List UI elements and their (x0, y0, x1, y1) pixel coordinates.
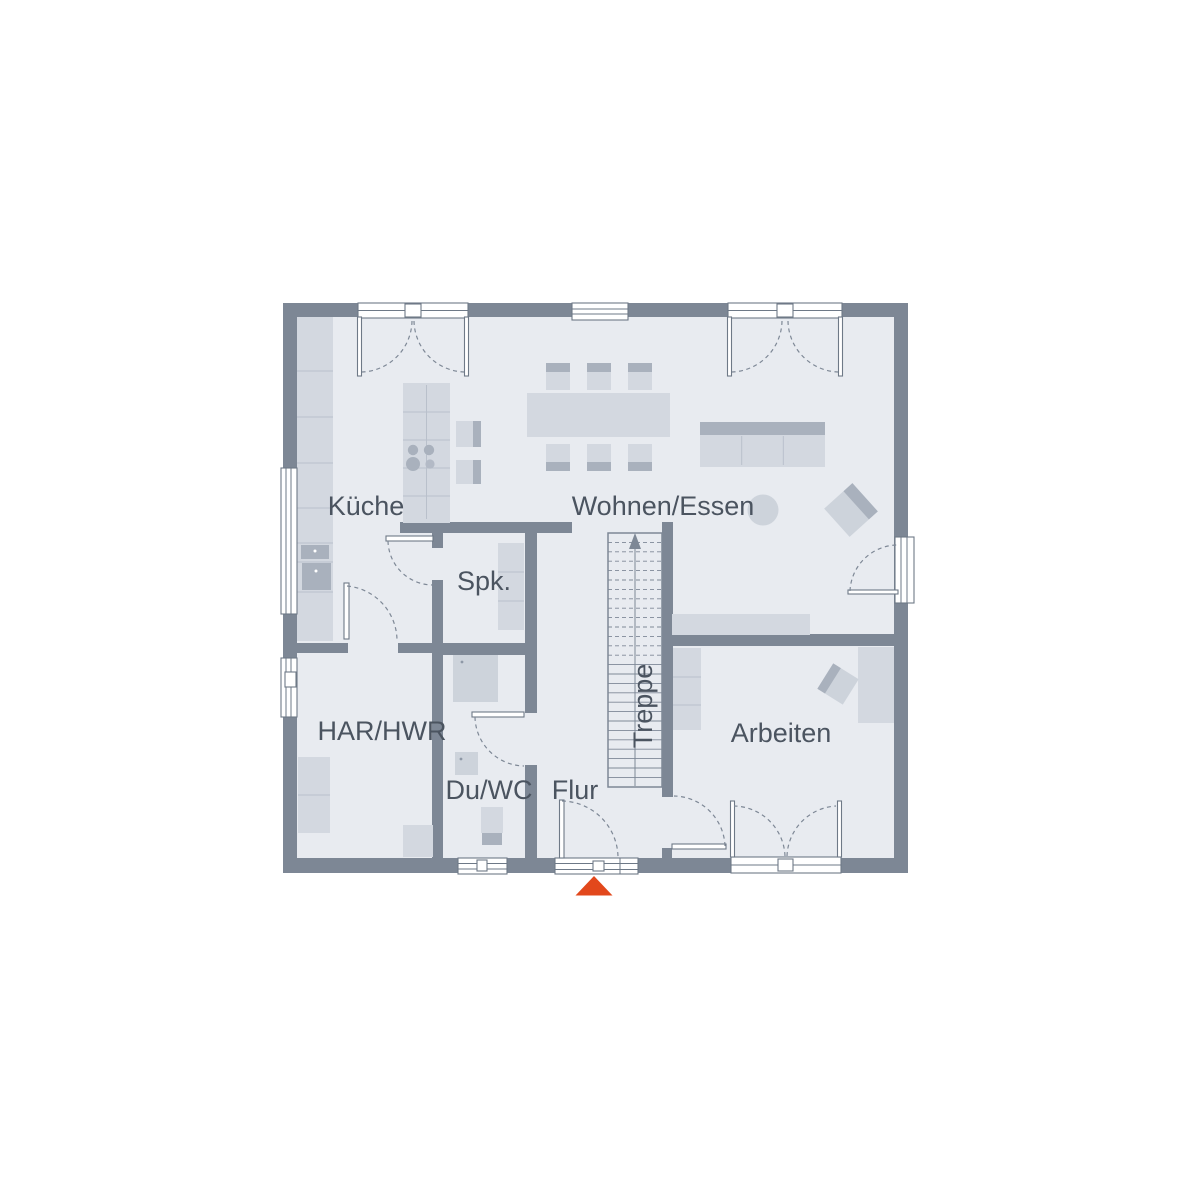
dining-chair (587, 444, 611, 471)
room-label-kitchen: Küche (328, 491, 405, 521)
kitchen-side-cabinet (456, 421, 481, 447)
toilet (481, 807, 503, 845)
room-label-stairs: Treppe (628, 664, 658, 749)
room-label-office: Arbeiten (731, 718, 832, 748)
window-bottom-bath (458, 858, 507, 874)
dining-chair (546, 363, 570, 390)
dining-chair (628, 363, 652, 390)
room-label-shower-wc: Du/WC (446, 775, 533, 805)
sideboard (672, 614, 810, 635)
dining-chair (587, 363, 611, 390)
window-top-dining (572, 303, 628, 320)
kitchen-counter (297, 317, 333, 641)
floor-plan-canvas: Küche Wohnen/Essen Spk. HAR/HWR Du/WC Fl… (0, 0, 1200, 1200)
floor-plan-drawing: Küche Wohnen/Essen Spk. HAR/HWR Du/WC Fl… (0, 0, 1200, 1200)
desk (858, 647, 894, 723)
room-label-utility: HAR/HWR (318, 716, 447, 746)
kitchen-island (403, 383, 450, 523)
dining-set (527, 363, 670, 471)
dining-chair (546, 444, 570, 471)
laundry-unit (298, 757, 330, 833)
window-left-kitchen (281, 468, 297, 614)
sofa (700, 422, 825, 467)
utility-cabinet (403, 825, 433, 857)
dining-chair (628, 444, 652, 471)
room-label-living-dining: Wohnen/Essen (572, 491, 755, 521)
entrance-arrow (576, 876, 613, 896)
room-label-hallway: Flur (552, 775, 599, 805)
office-shelf (673, 648, 701, 730)
kitchen-side-cabinet (456, 460, 481, 484)
kitchen-appliance (302, 563, 331, 590)
room-label-pantry: Spk. (457, 566, 511, 596)
shower (453, 655, 498, 702)
washbasin (455, 752, 478, 775)
dining-table (527, 393, 670, 437)
window-left-utility (281, 658, 297, 717)
